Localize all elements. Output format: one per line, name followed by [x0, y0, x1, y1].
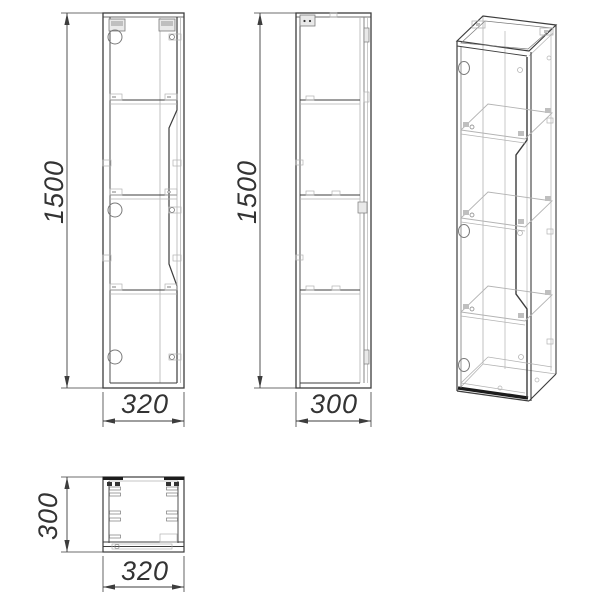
hanger-block — [174, 482, 179, 486]
front-shelves — [110, 94, 177, 294]
iso-shelf-2 — [461, 192, 552, 231]
top-view: 300 320 — [33, 477, 184, 592]
shelf-quad — [461, 286, 552, 321]
iso-right-top-inner — [529, 33, 553, 56]
arrowhead-left — [296, 418, 308, 423]
door-edge-fitting — [364, 92, 369, 102]
hanger-fitting-dot — [544, 30, 548, 33]
hanger-block — [107, 482, 112, 486]
bottom-fitting-circle — [535, 378, 539, 382]
hanger-fitting-dot — [476, 23, 480, 26]
shelf-fitting — [306, 96, 314, 100]
cam-bar — [110, 493, 121, 496]
arrowhead-up — [64, 13, 69, 25]
iso-hinges — [459, 62, 470, 372]
cam-fitting-circle — [170, 35, 175, 40]
iso-door-top-edge — [457, 46, 527, 56]
hanger-bracket-left-detail — [111, 21, 123, 26]
top-hanger-rails — [103, 479, 184, 487]
top-side-cams — [110, 487, 178, 549]
hanger-block — [115, 482, 120, 486]
iso-bottom-panel — [461, 357, 552, 393]
cam-bar — [167, 487, 178, 490]
cam-fitting — [547, 339, 553, 344]
shelf-cam — [463, 304, 469, 309]
cam-bar — [167, 518, 178, 521]
dim-label-top-depth: 300 — [33, 492, 63, 540]
hanger-block — [166, 482, 171, 486]
cam-bar — [110, 511, 121, 514]
front-hanger-brackets — [109, 19, 175, 31]
door-fitting-circle — [518, 231, 523, 236]
side-shelf-3 — [300, 286, 360, 294]
hanger-screw — [303, 20, 305, 22]
arrowhead-up — [257, 13, 262, 25]
shelf-cam — [518, 219, 524, 224]
shelf-cam — [545, 196, 551, 201]
shelf-cam — [518, 131, 524, 136]
shelf-fitting — [332, 191, 340, 195]
shelf-fitting-dot — [112, 191, 116, 193]
cam-bar — [110, 487, 121, 490]
arrowhead-down — [64, 376, 69, 388]
hinge-cup-bottom — [459, 359, 470, 372]
iso-shelves — [461, 104, 552, 393]
shelf-cam-circle — [470, 125, 474, 129]
front-width-dimension: 320 — [103, 389, 184, 427]
iso-top-face-inner — [461, 21, 552, 49]
shelf-fitting-dot — [167, 96, 171, 98]
arrowhead-right — [172, 584, 184, 589]
cam-bar — [167, 511, 178, 514]
top-width-dimension: 320 — [103, 556, 184, 592]
cam-housing — [160, 534, 177, 542]
cam-bar — [110, 535, 121, 538]
side-shelves — [300, 96, 360, 294]
cam-fitting-circle — [170, 208, 175, 213]
iso-shelf-1 — [461, 104, 552, 143]
shelf-fitting-dot — [167, 286, 171, 288]
cam-fitting — [547, 229, 553, 234]
isometric-view — [457, 16, 556, 401]
side-height-dimension: 1500 — [232, 13, 296, 388]
iso-shelf-3 — [461, 286, 552, 325]
door-fitting-circle — [519, 355, 524, 360]
iso-hidden-lines — [457, 16, 556, 391]
shelf-quad — [461, 192, 552, 227]
front-outer-rect — [103, 13, 184, 388]
top-depth-dimension: 300 — [33, 477, 103, 552]
top-cabinet-outline — [103, 477, 184, 552]
shelf-quad — [461, 104, 552, 139]
cam-fitting-circle — [547, 56, 551, 60]
shelf-fitting — [306, 191, 314, 195]
dim-label-front-width: 320 — [121, 389, 169, 419]
door-edge-fitting — [364, 350, 369, 364]
hanger-screw — [309, 20, 311, 22]
arrowhead-left — [103, 584, 115, 589]
technical-drawing-canvas: 1500 320 — [0, 0, 600, 600]
dim-label-side-height: 1500 — [232, 160, 262, 224]
front-cabinet-outline — [103, 13, 184, 388]
arrowhead-up — [64, 477, 69, 489]
side-edge-fittings — [296, 28, 369, 364]
arrowhead-right — [172, 418, 184, 423]
front-shelf-3 — [110, 284, 177, 294]
hanger-bracket — [300, 15, 315, 26]
shelf-cam — [518, 313, 524, 318]
shelf-fitting-dot — [167, 191, 171, 193]
dim-label-front-height: 1500 — [39, 160, 69, 224]
side-view: 1500 300 — [232, 13, 371, 427]
bottom-panel-left — [461, 357, 488, 383]
front-shelf-2 — [110, 189, 177, 199]
hanger-bracket-right-detail — [161, 21, 173, 26]
shelf-cam — [545, 108, 551, 113]
hinge-cup-middle — [459, 225, 470, 238]
shelf-cam — [463, 122, 469, 127]
door-fitting-circle — [518, 68, 523, 73]
hinge-cup-top — [459, 62, 470, 75]
front-view: 1500 320 — [39, 13, 184, 427]
shelf-cam-circle — [470, 213, 474, 217]
side-depth-dimension: 300 — [296, 389, 371, 427]
arrowhead-down — [257, 376, 262, 388]
iso-bottom-right-edge — [529, 374, 556, 401]
bottom-panel-back — [488, 357, 552, 367]
cam-fitting — [547, 118, 553, 123]
cam-fitting-circle — [170, 355, 175, 360]
shelf-front-thickness — [461, 316, 525, 325]
shelf-fitting-dot — [112, 96, 116, 98]
door-edge-fitting — [364, 28, 369, 42]
door-edge-fitting — [358, 202, 367, 213]
shelf-cam — [545, 290, 551, 295]
side-shelf-1 — [300, 96, 360, 104]
shelf-front-thickness — [461, 134, 525, 143]
cam-bar — [110, 518, 121, 521]
front-shelf-1 — [110, 94, 177, 104]
shelf-fitting — [332, 286, 340, 290]
cam-bar — [167, 493, 178, 496]
dim-label-side-depth: 300 — [310, 389, 358, 419]
shelf-cam-circle — [470, 307, 474, 311]
front-door-handle-groove — [169, 17, 177, 383]
pin-mark — [296, 255, 303, 260]
iso-cabinet-outline — [457, 16, 556, 401]
shelf-fitting-dot — [112, 286, 116, 288]
arrowhead-left — [103, 418, 115, 423]
arrowhead-right — [359, 418, 371, 423]
pin-mark — [296, 160, 303, 165]
shelf-fitting — [306, 286, 314, 290]
side-shelf-2 — [300, 191, 360, 199]
shelf-cam — [463, 210, 469, 215]
side-cabinet-outline — [296, 13, 371, 388]
dim-label-top-width: 320 — [121, 556, 169, 586]
side-hanger-bracket — [300, 13, 337, 26]
arrowhead-down — [64, 540, 69, 552]
iso-bottom-back-edge — [483, 364, 556, 374]
front-height-dimension: 1500 — [39, 13, 103, 388]
top-outer-rect — [103, 477, 184, 552]
